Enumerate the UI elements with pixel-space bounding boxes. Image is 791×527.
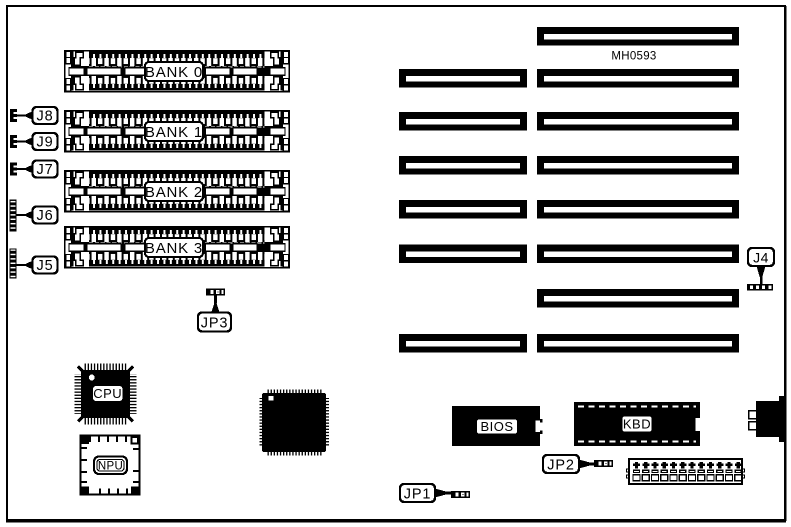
svg-text:BIOS: BIOS [480, 419, 513, 434]
svg-text:MH0593: MH0593 [611, 51, 656, 63]
svg-text:BANK 0: BANK 0 [145, 64, 203, 81]
svg-text:JP2: JP2 [547, 458, 574, 474]
svg-text:J7: J7 [37, 162, 54, 178]
svg-text:J4: J4 [753, 250, 769, 266]
svg-text:JP1: JP1 [404, 487, 431, 503]
svg-text:NPU: NPU [98, 460, 123, 472]
svg-text:BANK 2: BANK 2 [145, 184, 203, 201]
svg-text:BANK 1: BANK 1 [145, 124, 203, 141]
svg-text:JP3: JP3 [201, 316, 228, 332]
svg-text:J9: J9 [37, 135, 54, 151]
svg-text:CPU: CPU [93, 386, 122, 401]
svg-text:J8: J8 [37, 109, 54, 125]
svg-text:J5: J5 [37, 258, 54, 274]
svg-text:J6: J6 [37, 208, 54, 224]
svg-text:BANK 3: BANK 3 [145, 240, 203, 257]
svg-text:KBD: KBD [623, 417, 651, 432]
